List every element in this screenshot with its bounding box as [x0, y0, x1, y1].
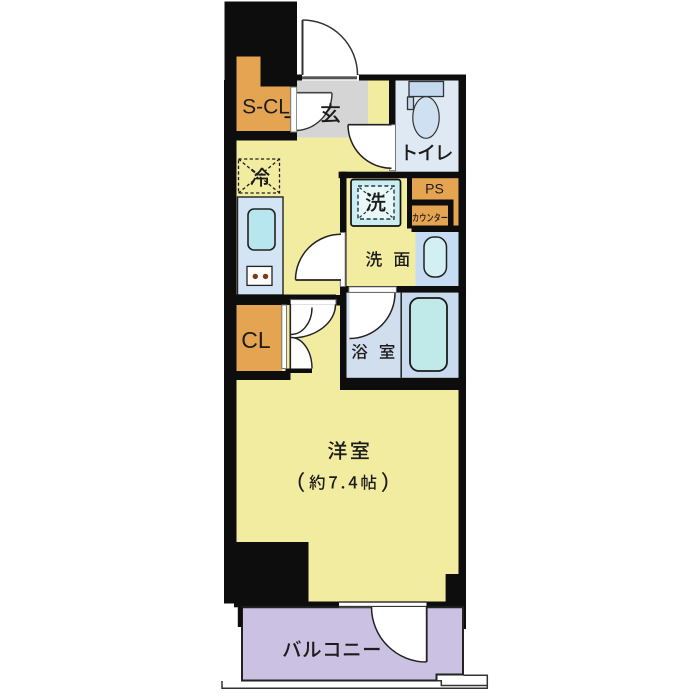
svg-text:S-CL: S-CL: [242, 96, 290, 119]
svg-text:CL: CL: [241, 327, 271, 353]
svg-text:PS: PS: [425, 181, 444, 197]
